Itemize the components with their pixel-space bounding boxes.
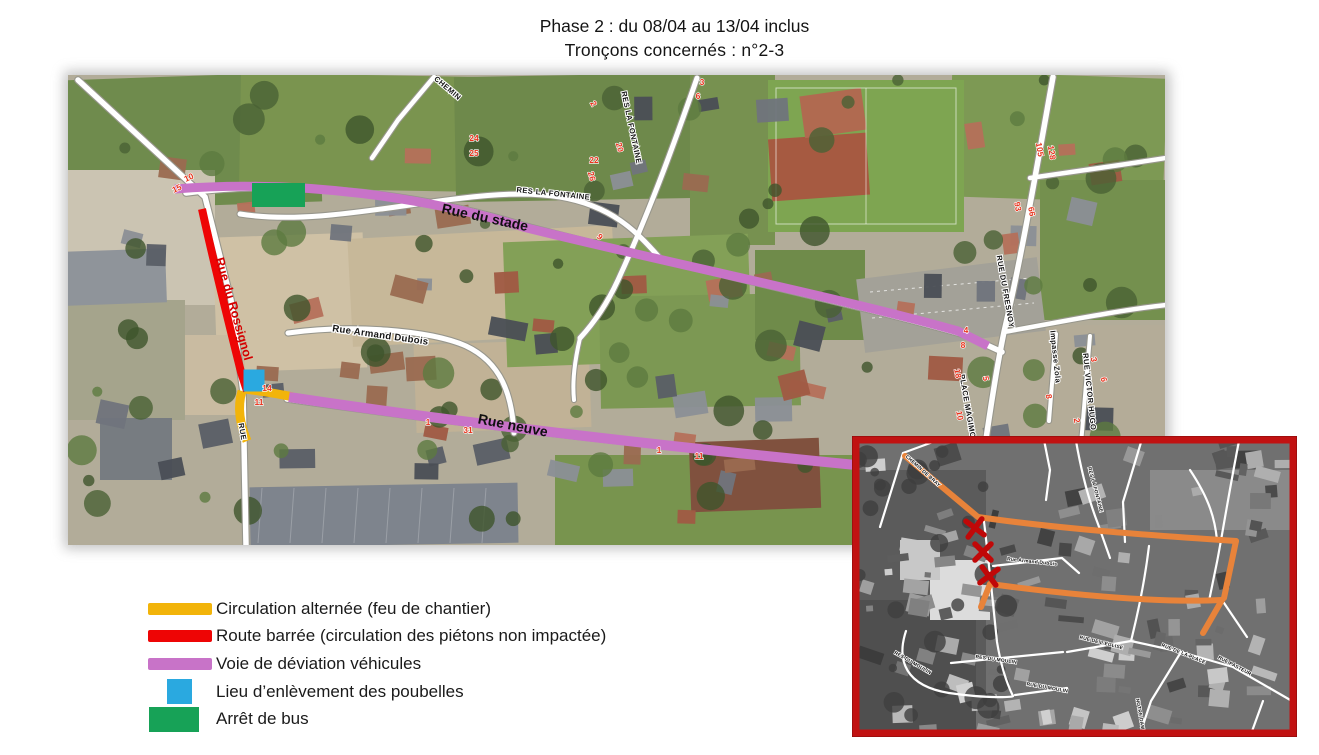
house-number: 1 bbox=[426, 417, 431, 427]
house-number: 18 bbox=[952, 368, 964, 379]
legend-color-chip-deviation bbox=[148, 658, 212, 670]
legend-item-label: Circulation alternée (feu de chantier) bbox=[216, 599, 491, 619]
house-number: 1 bbox=[657, 445, 662, 455]
legend-color-chip-alternating bbox=[148, 603, 212, 615]
legend-item-bus: Arrêt de bus bbox=[148, 705, 606, 733]
house-number: 3 bbox=[700, 77, 705, 87]
roadworks-plan-page: Phase 2 : du 08/04 au 13/04 inclus Tronç… bbox=[0, 0, 1319, 755]
house-number: 6 bbox=[696, 91, 701, 101]
house-number: 29 bbox=[1203, 171, 1216, 184]
legend-color-chip-bus bbox=[149, 707, 199, 732]
house-number: 10 bbox=[954, 410, 966, 421]
house-number: 8 bbox=[961, 340, 966, 350]
house-number: 24 bbox=[469, 133, 479, 143]
house-number: 28 bbox=[1209, 188, 1222, 201]
house-number: 4 bbox=[964, 325, 969, 335]
legend-item-deviation: Voie de déviation véhicules bbox=[148, 650, 606, 678]
legend-color-chip-closed bbox=[148, 630, 212, 642]
house-number: 66 bbox=[1026, 206, 1038, 217]
house-number: 93 bbox=[1012, 201, 1024, 212]
legend: Circulation alternée (feu de chantier)Ro… bbox=[148, 595, 606, 733]
legend-item-label: Lieu d’enlèvement des poubelles bbox=[216, 682, 464, 702]
house-number: 25 bbox=[469, 148, 479, 158]
legend-item-trash: Lieu d’enlèvement des poubelles bbox=[148, 678, 606, 706]
legend-item-label: Route barrée (circulation des piétons no… bbox=[216, 626, 606, 646]
legend-item-label: Arrêt de bus bbox=[216, 709, 309, 729]
house-number: 11 bbox=[695, 451, 704, 461]
legend-item-alternating: Circulation alternée (feu de chantier) bbox=[148, 595, 606, 623]
inset-map: CHEMIN DE BRAYRES LA FONTAINERue Armand … bbox=[850, 437, 1296, 742]
legend-item-label: Voie de déviation véhicules bbox=[216, 654, 421, 674]
legend-color-chip-trash bbox=[167, 679, 192, 704]
house-number: 22 bbox=[589, 155, 599, 165]
house-number: 31 bbox=[463, 425, 473, 435]
house-number: 14 bbox=[262, 383, 272, 393]
legend-item-closed: Route barrée (circulation des piétons no… bbox=[148, 623, 606, 651]
house-number: 11 bbox=[255, 397, 264, 407]
bus-stop-marker bbox=[252, 183, 305, 207]
